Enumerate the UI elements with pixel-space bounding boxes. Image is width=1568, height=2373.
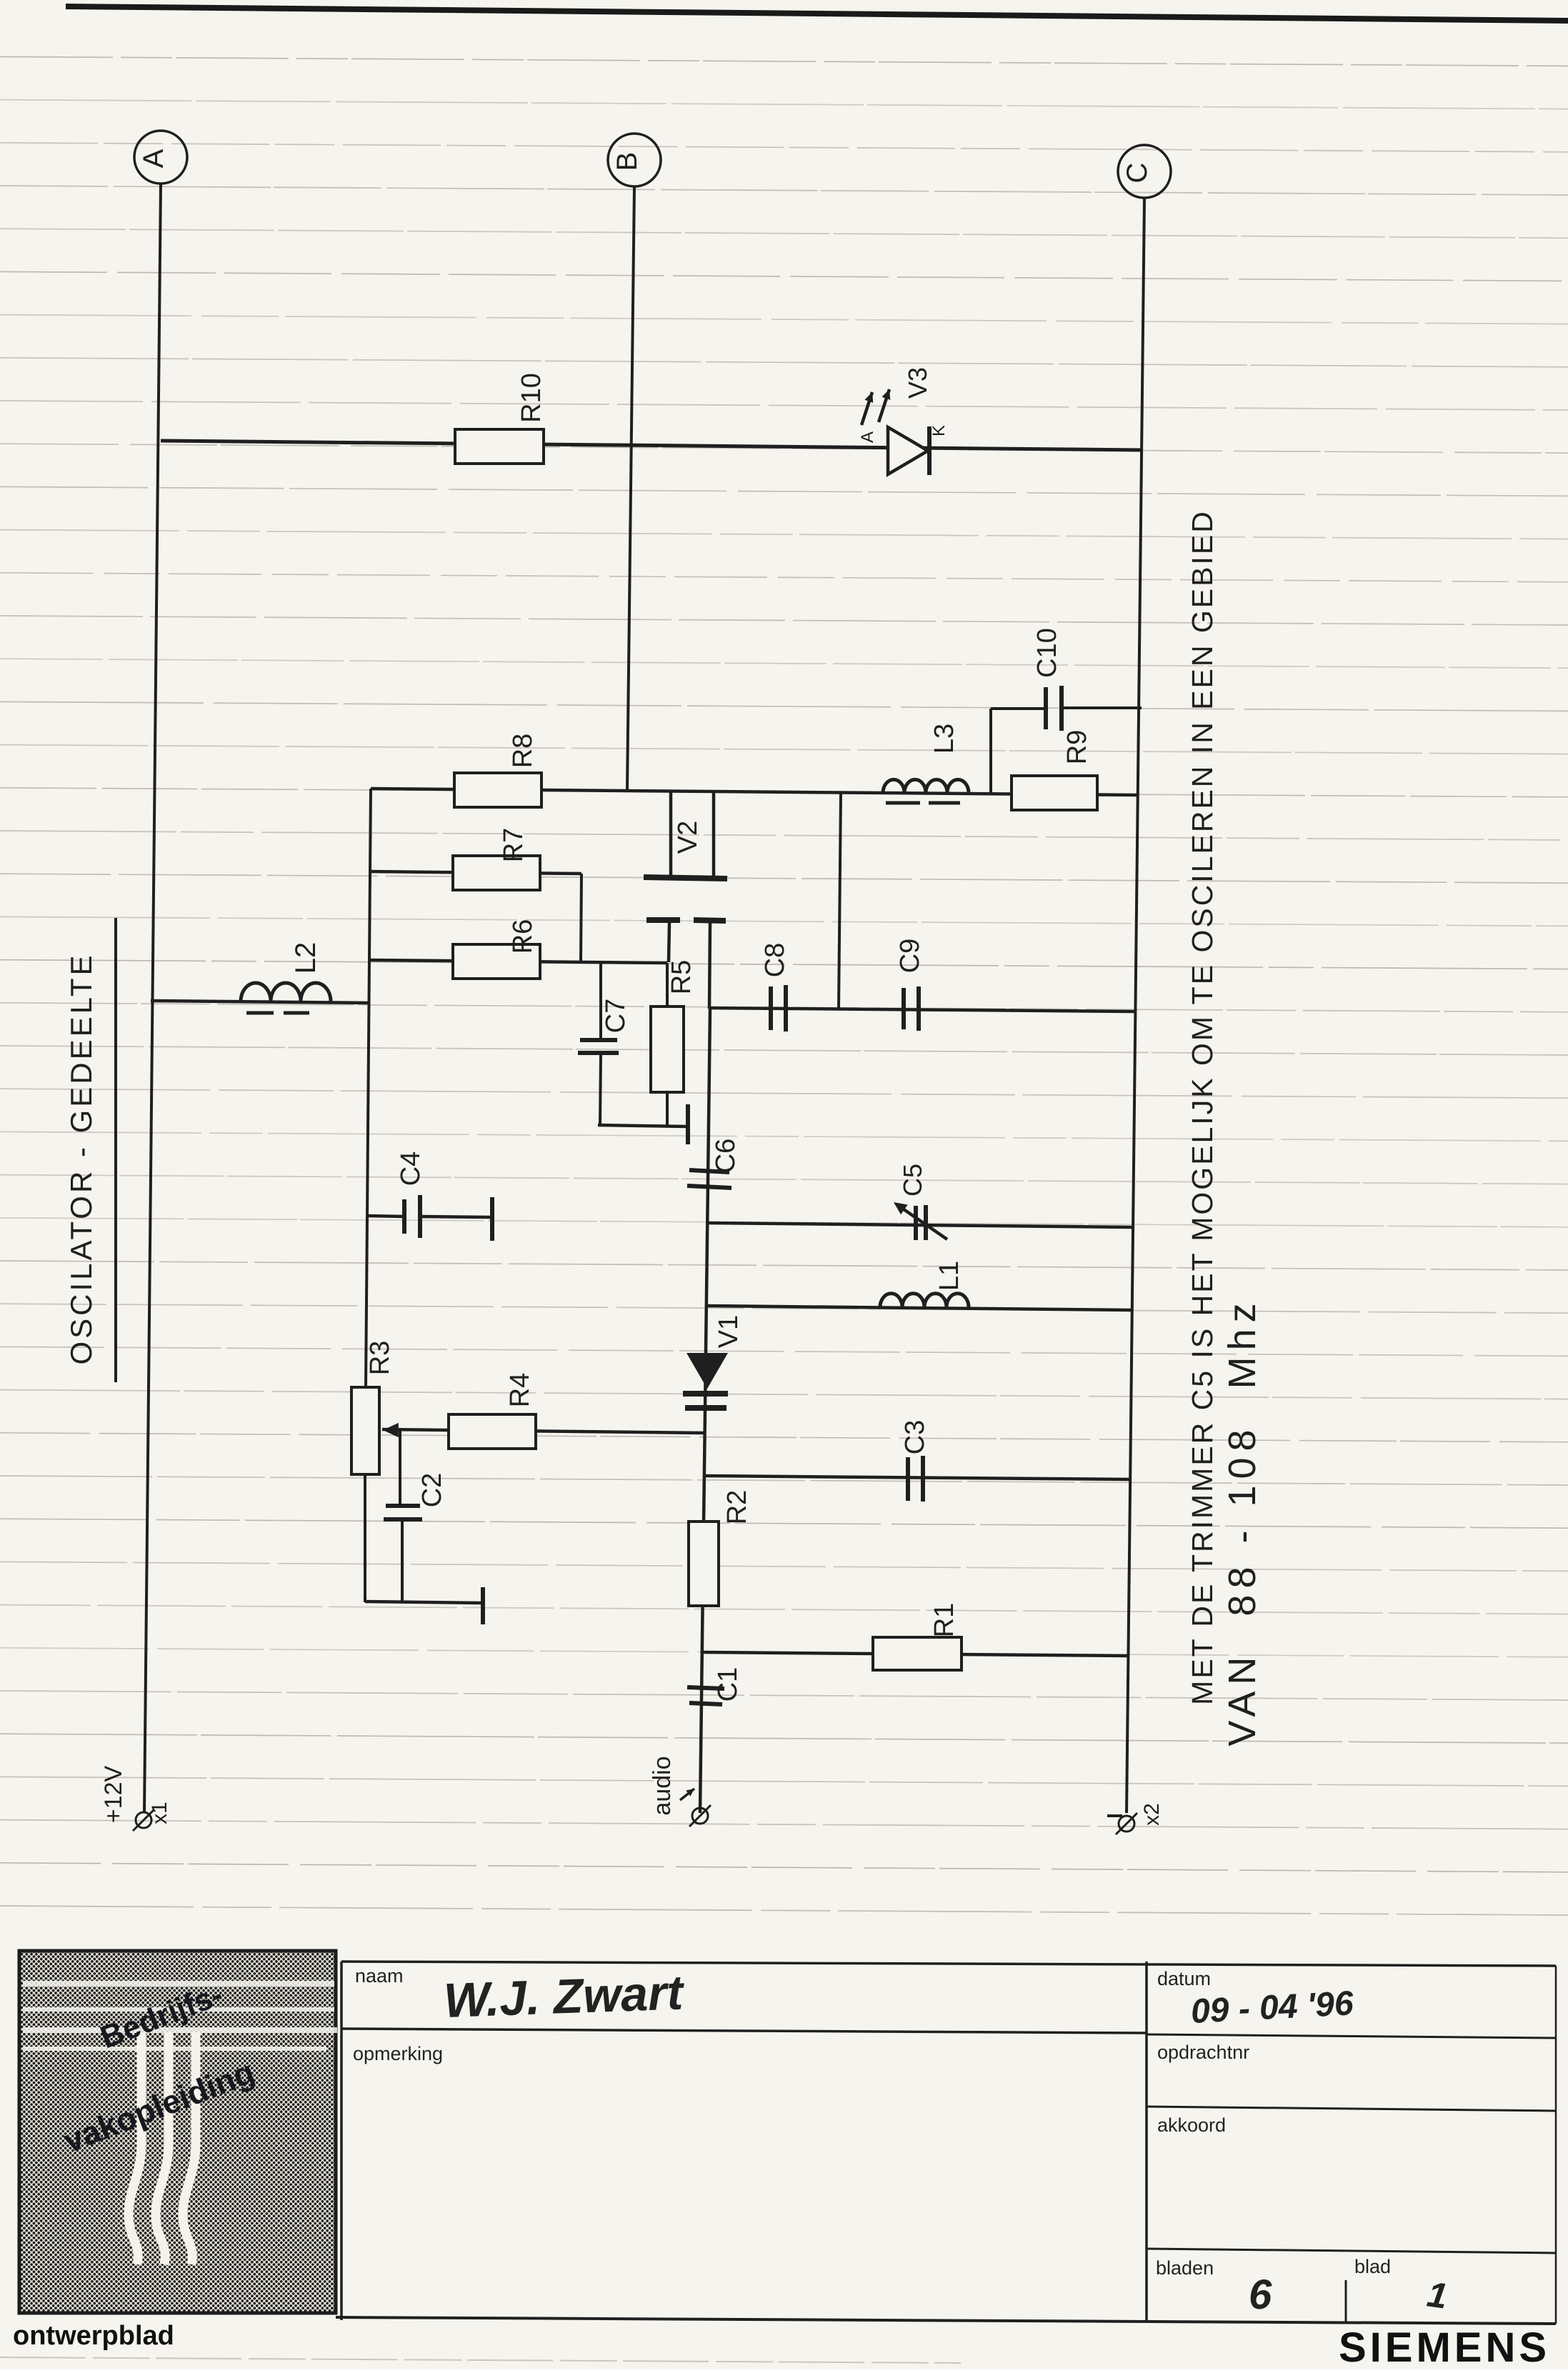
svg-text:VAN 88 - 108 Mhz: VAN 88 - 108 Mhz [1221,1297,1264,1746]
svg-text:C2: C2 [417,1473,447,1508]
svg-text:+12V: +12V [100,1766,127,1824]
svg-text:C7: C7 [601,999,631,1034]
svg-text:C6: C6 [711,1139,741,1174]
svg-text:C1: C1 [713,1667,743,1702]
svg-text:C8: C8 [760,943,790,978]
svg-text:datum: datum [1157,1968,1211,1989]
svg-text:R5: R5 [666,960,696,995]
svg-text:A: A [858,431,877,443]
svg-text:C5: C5 [898,1164,927,1197]
svg-text:C4: C4 [396,1151,426,1186]
svg-text:R2: R2 [722,1490,752,1525]
svg-text:ontwerpblad: ontwerpblad [13,2321,174,2351]
svg-text:R1: R1 [929,1603,959,1638]
svg-text:6: 6 [1249,2272,1272,2318]
svg-text:MET DE TRIMMER C5 IS HET MOGEL: MET DE TRIMMER C5 IS HET MOGELIJK OM TE … [1186,509,1219,1705]
svg-text:L3: L3 [929,724,959,754]
svg-text:OSCILATOR - GEDEELTE: OSCILATOR - GEDEELTE [64,952,98,1364]
svg-text:C: C [1122,163,1153,184]
svg-text:K: K [929,425,949,436]
svg-text:R7: R7 [499,828,529,863]
svg-text:R9: R9 [1062,730,1092,765]
svg-text:V1: V1 [714,1315,744,1348]
svg-text:x2: x2 [1140,1803,1164,1826]
svg-text:SIEMENS: SIEMENS [1339,2324,1550,2369]
svg-text:blad: blad [1354,2256,1391,2277]
svg-text:L1: L1 [934,1261,964,1291]
svg-text:V2: V2 [673,821,703,854]
svg-text:R4: R4 [505,1373,535,1408]
svg-text:opmerking: opmerking [353,2043,443,2064]
svg-text:x1: x1 [148,1802,171,1824]
svg-text:C10: C10 [1032,628,1062,678]
svg-text:R10: R10 [516,373,546,423]
svg-text:C3: C3 [900,1420,930,1455]
svg-text:R3: R3 [365,1341,395,1376]
svg-text:naam: naam [355,1965,404,1987]
svg-text:akkoord: akkoord [1157,2114,1226,2136]
svg-text:audio: audio [649,1756,676,1815]
svg-text:L2: L2 [290,942,321,974]
svg-text:W.J. Zwart: W.J. Zwart [443,1965,686,2028]
svg-text:C9: C9 [895,939,925,974]
svg-text:A: A [138,149,169,168]
svg-text:R8: R8 [508,734,538,769]
svg-text:B: B [611,152,643,171]
svg-text:R6: R6 [508,919,538,954]
svg-text:bladen: bladen [1156,2257,1214,2279]
svg-text:opdrachtnr: opdrachtnr [1157,2042,1249,2063]
svg-text:V3: V3 [903,367,932,399]
